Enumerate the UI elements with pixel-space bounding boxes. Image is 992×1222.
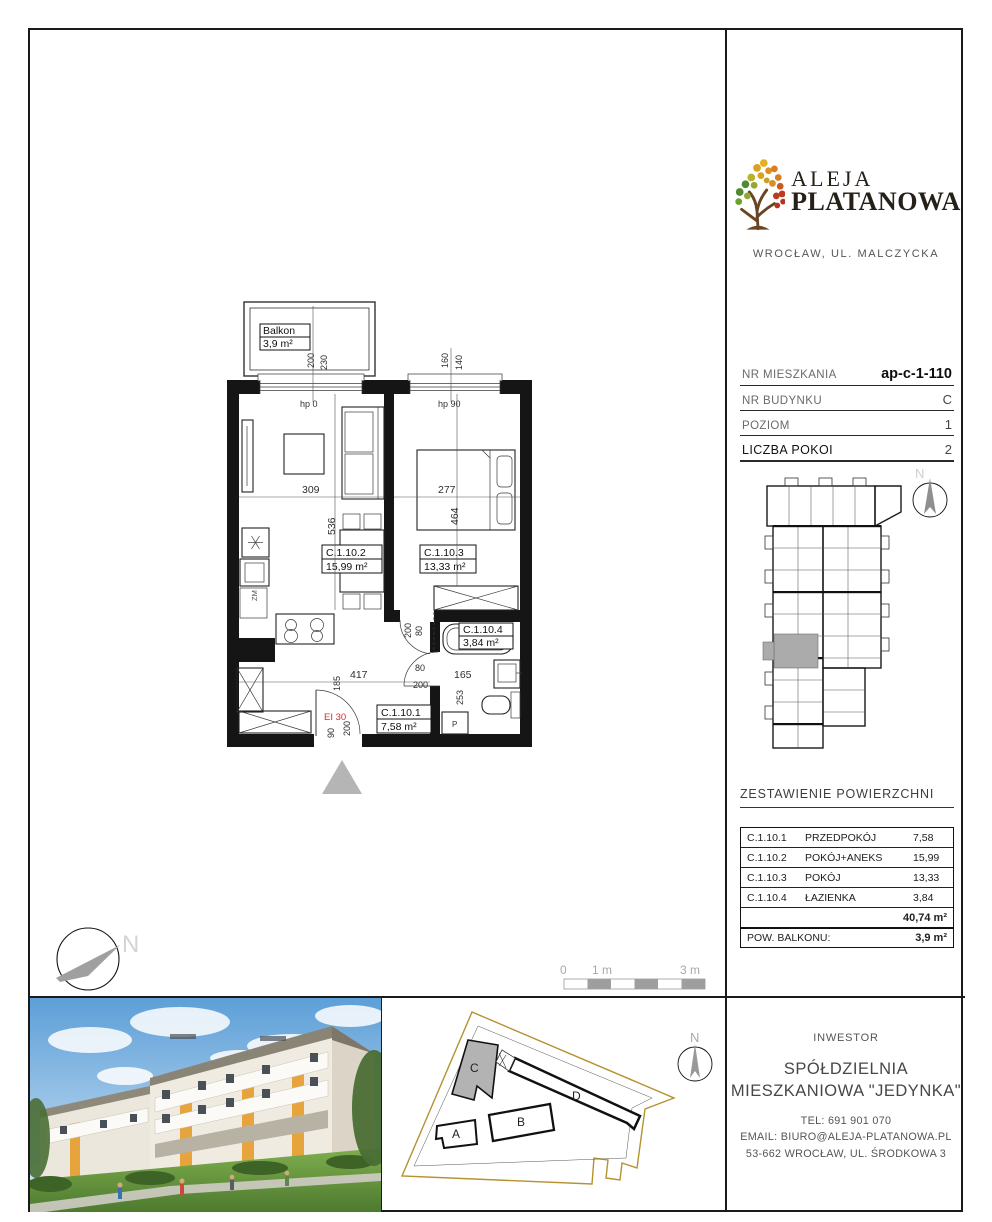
dim-185: 185 (332, 676, 342, 691)
site-boundary (402, 1012, 674, 1184)
dim-window2-w: 160 (440, 353, 450, 368)
room-label-hall: C.1.10.1 7,58 m² (377, 705, 431, 733)
svg-text:D: D (572, 1089, 581, 1103)
svg-text:C.1.10.1: C.1.10.1 (381, 707, 421, 719)
dim-464: 464 (449, 507, 461, 525)
investor-heading: INWESTOR (727, 1032, 965, 1044)
apartment-floor-plan: Balkon 3,9 m² (30, 30, 725, 996)
svg-text:C: C (470, 1061, 479, 1075)
investor-name: SPÓŁDZIELNIA MIESZKANIOWA "JEDYNKA" (727, 1058, 965, 1103)
window-bedroom (408, 374, 502, 394)
scale-3m: 3 m (680, 963, 700, 977)
svg-text:15,99 m²: 15,99 m² (326, 561, 368, 573)
dim-80: 80 (415, 663, 425, 673)
apartment-info-table: NR MIESZKANIAap-c-1-110 NR BUDYNKUC POZI… (740, 360, 954, 462)
site-building-a: A (436, 1120, 477, 1148)
fridge (242, 528, 269, 557)
window-balcony-door (258, 374, 364, 394)
dim-309: 309 (302, 484, 320, 496)
tree-logo-icon (731, 152, 785, 232)
dishwasher-label: ZM (250, 590, 259, 601)
site-building-c: C (452, 1040, 498, 1100)
areas-table: C.1.10.1PRZEDPOKÓJ7,58 C.1.10.2POKÓJ+ANE… (740, 827, 954, 928)
investor-address: 53-662 WROCŁAW, UL. ŚRODKOWA 3 (727, 1146, 965, 1163)
svg-text:N: N (690, 1030, 699, 1045)
dim-entrance-90: 90 (326, 728, 336, 738)
areas-title: ZESTAWIENIE POWIERZCHNI (740, 787, 954, 808)
info-row-rooms: LICZBA POKOI2 (740, 436, 954, 462)
scale-0: 0 (560, 963, 567, 977)
kitchen-sink (240, 559, 269, 586)
svg-text:7,58 m²: 7,58 m² (381, 721, 417, 733)
room-label-bedroom: C.1.10.3 13,33 m² (420, 545, 476, 573)
bathroom-sink (494, 660, 522, 688)
highlighted-apartment (774, 634, 818, 668)
tv-unit (242, 420, 253, 492)
dim-417: 417 (350, 669, 368, 681)
investor-email: EMAIL: BIURO@ALEJA-PLATANOWA.PL (727, 1129, 965, 1146)
logo-title-line2: PLATANOWA (791, 190, 961, 215)
dim-165: 165 (454, 669, 472, 681)
room-label-livingroom: C.1.10.2 15,99 m² (322, 545, 382, 573)
info-row-apartment-number: NR MIESZKANIAap-c-1-110 (740, 360, 954, 386)
area-total: 40,74 m² (741, 908, 953, 927)
area-row-bedroom: C.1.10.3POKÓJ13,33 (741, 868, 953, 888)
dim-253: 253 (455, 690, 465, 705)
info-row-building: NR BUDYNKUC (740, 386, 954, 411)
washing-machine: P (442, 712, 468, 734)
investor-phone: TEL: 691 901 070 (727, 1113, 965, 1130)
svg-text:A: A (452, 1127, 460, 1141)
svg-text:B: B (517, 1115, 525, 1129)
svg-text:C.1.10.4: C.1.10.4 (463, 624, 503, 636)
dim-door-80: 80 (414, 626, 424, 636)
dim-door-200: 200 (403, 623, 413, 638)
dim-window2-h: 140 (454, 355, 464, 370)
wardrobe-hallway-wide (239, 711, 311, 733)
wardrobe-hallway-tall (237, 668, 263, 712)
investor-section: INWESTOR SPÓŁDZIELNIA MIESZKANIOWA "JEDY… (727, 996, 965, 1210)
scale-bar: 0 1 m 3 m (560, 963, 705, 989)
balcony-label: Balkon (263, 325, 295, 337)
area-row-bathroom: C.1.10.4ŁAZIENKA3,84 (741, 888, 953, 908)
building-plan-compass: N (913, 466, 947, 517)
building-floor-plan: N (727, 460, 965, 765)
dim-window1-w: 200 (306, 353, 316, 368)
page-frame: Balkon 3,9 m² (28, 28, 963, 1212)
bed (417, 450, 515, 530)
building-photo (30, 996, 381, 1212)
north-compass: N (56, 928, 139, 990)
investor-contact: TEL: 691 901 070 EMAIL: BIURO@ALEJA-PLAT… (727, 1113, 965, 1163)
toilet (482, 692, 520, 718)
scale-1m: 1 m (592, 963, 612, 977)
site-map-compass: N (678, 1030, 712, 1081)
floor-plan-drawing: Balkon 3,9 m² (30, 30, 725, 996)
dim-200: 200 (413, 680, 428, 690)
svg-text:3,84 m²: 3,84 m² (463, 637, 499, 649)
site-building-b: B (489, 1104, 554, 1141)
cooktop (276, 614, 334, 644)
dim-536: 536 (326, 517, 338, 535)
area-row-livingroom: C.1.10.2POKÓJ+ANEKS15,99 (741, 848, 953, 868)
logo-subtitle: WROCŁAW, UL. MALCZYCKA (727, 248, 965, 260)
dim-277: 277 (438, 484, 456, 496)
room-label-bathroom: C.1.10.4 3,84 m² (459, 623, 513, 649)
washer-label: P (452, 720, 457, 729)
svg-text:C.1.10.3: C.1.10.3 (424, 547, 464, 559)
coffee-table (284, 434, 324, 474)
area-row-hall: C.1.10.1PRZEDPOKÓJ7,58 (741, 828, 953, 848)
entrance-marker (322, 760, 362, 794)
site-map: C D A B N (381, 996, 725, 1210)
dim-entrance-200: 200 (342, 721, 352, 736)
wardrobe-bedroom (434, 586, 518, 610)
info-row-level: POZIOM1 (740, 411, 954, 436)
north-letter: N (122, 931, 139, 958)
balcony-area: 3,9 m² (263, 338, 293, 350)
balcony-area-row: POW. BALKONU:3,9 m² (740, 928, 954, 948)
logo: ALEJA PLATANOWA WROCŁAW, UL. MALCZYCKA (727, 152, 965, 260)
sofa (342, 407, 384, 499)
svg-text:13,33 m²: 13,33 m² (424, 561, 466, 573)
dishwasher: ZM (240, 588, 267, 618)
sidebar: ALEJA PLATANOWA WROCŁAW, UL. MALCZYCKA N… (725, 30, 965, 1210)
dim-window1-hp: hp 0 (300, 399, 318, 409)
svg-text:C.1.10.2: C.1.10.2 (326, 547, 366, 559)
dim-window1-h: 230 (319, 355, 329, 370)
svg-text:N: N (915, 466, 924, 481)
